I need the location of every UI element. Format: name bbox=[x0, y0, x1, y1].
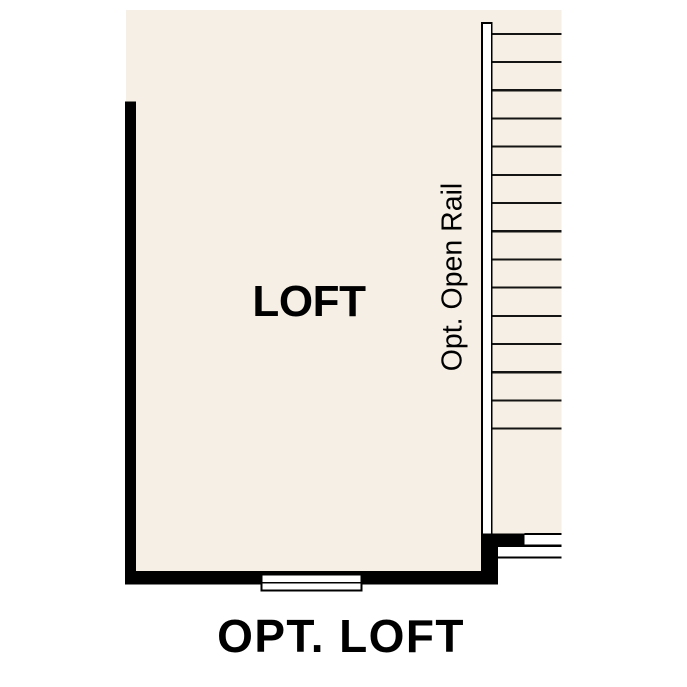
svg-text:OPT. LOFT: OPT. LOFT bbox=[217, 610, 465, 662]
svg-text:Opt. Open Rail: Opt. Open Rail bbox=[437, 183, 469, 372]
svg-text:LOFT: LOFT bbox=[252, 277, 366, 326]
